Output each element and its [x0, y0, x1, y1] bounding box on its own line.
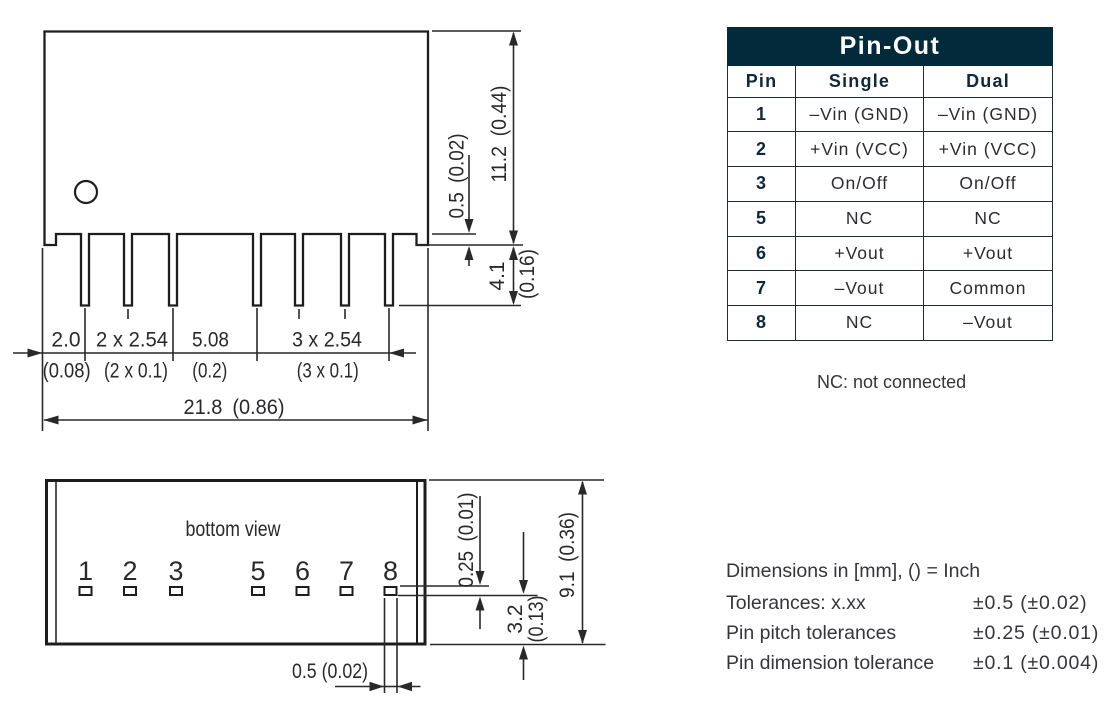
svg-text:(0.08): (0.08) — [43, 360, 91, 383]
svg-text:(2 x 0.1): (2 x 0.1) — [104, 360, 168, 383]
svg-text:(0.2): (0.2) — [192, 360, 227, 383]
svg-text:3.2: 3.2 — [504, 604, 527, 633]
svg-text:3 x 2.54: 3 x 2.54 — [292, 329, 362, 352]
svg-text:1: 1 — [78, 556, 93, 586]
svg-text:bottom view: bottom view — [186, 518, 282, 541]
svg-text:4.1: 4.1 — [486, 261, 509, 290]
svg-text:11.2 (0.44): 11.2 (0.44) — [488, 86, 511, 183]
svg-text:2.0: 2.0 — [51, 329, 80, 352]
svg-text:(3 x 0.1): (3 x 0.1) — [297, 360, 359, 383]
svg-text:6: 6 — [295, 556, 310, 586]
svg-text:7: 7 — [339, 556, 354, 586]
svg-text:0.5 (0.02): 0.5 (0.02) — [292, 660, 368, 683]
svg-text:(0.13): (0.13) — [525, 596, 548, 643]
svg-text:3: 3 — [168, 556, 183, 586]
svg-text:8: 8 — [383, 556, 398, 586]
svg-text:9.1 (0.36): 9.1 (0.36) — [556, 512, 579, 598]
svg-text:0.5 (0.02): 0.5 (0.02) — [446, 134, 469, 219]
svg-text:21.8 (0.86): 21.8 (0.86) — [184, 396, 285, 419]
svg-text:(0.16): (0.16) — [516, 249, 539, 299]
svg-text:2: 2 — [122, 556, 137, 586]
svg-text:0.25 (0.01): 0.25 (0.01) — [455, 493, 478, 588]
svg-text:5: 5 — [250, 556, 265, 586]
svg-text:2 x 2.54: 2 x 2.54 — [96, 329, 168, 352]
svg-text:5.08: 5.08 — [192, 329, 229, 352]
